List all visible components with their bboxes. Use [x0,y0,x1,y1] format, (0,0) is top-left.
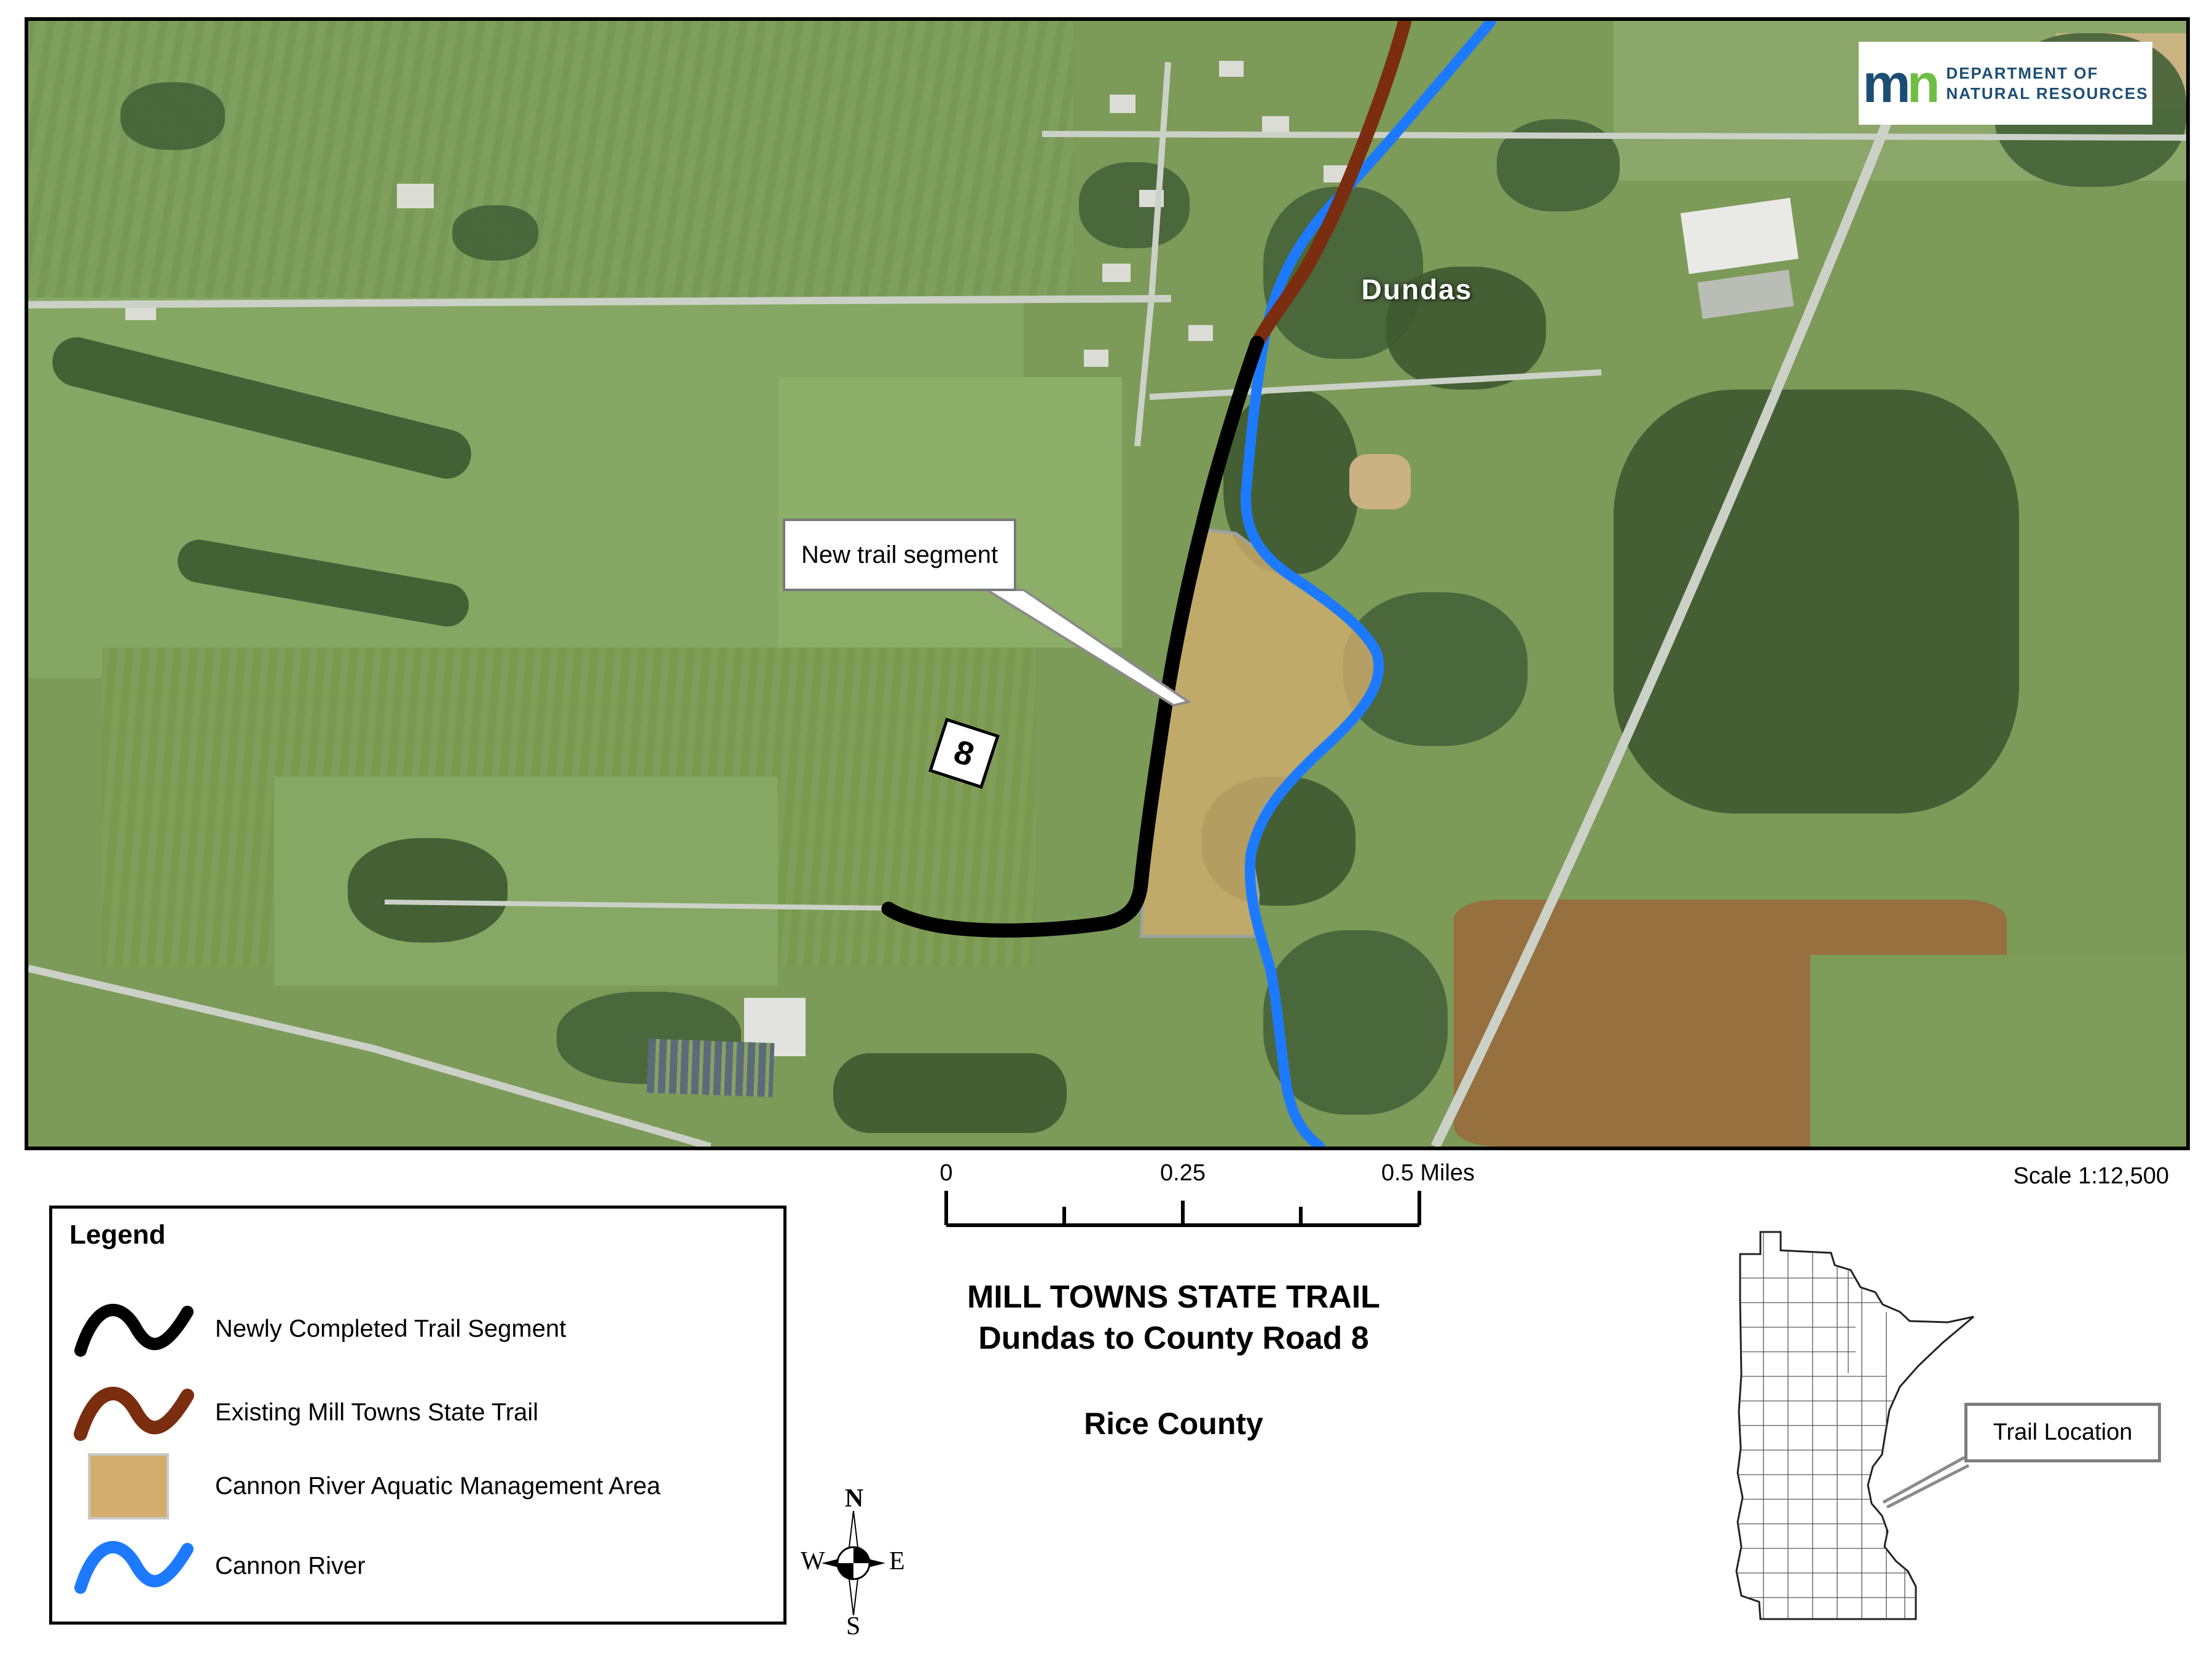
compass-star-icon [817,1511,890,1615]
trail-location-callout: Trail Location [1964,1403,2161,1462]
scalebar-label-quarter: 0.25 [1143,1160,1223,1186]
compass-east-label: E [889,1547,905,1576]
road-network [28,62,2186,1147]
compass-north-label: N [845,1484,863,1513]
map-overlay [28,21,2186,1147]
dnr-logo-text: DEPARTMENT OF NATURAL RESOURCES [1946,63,2148,103]
scale-ratio-note: Scale 1:12,500 [1923,1163,2169,1190]
town-label: Dundas [1325,273,1509,306]
aerial-map: Dundas New trail segment 8 mn DEPARTMENT… [25,17,2190,1150]
county-title: Rice County [916,1406,1432,1441]
inset-leader [1883,1457,1969,1507]
new-trail-callout-text: New trail segment [801,541,998,569]
new-trail-callout: New trail segment [783,519,1016,591]
dnr-logo-line2: NATURAL RESOURCES [1946,84,2148,104]
scalebar-label-0: 0 [928,1160,965,1186]
scalebar [922,1186,1475,1229]
legend-label: Cannon River Aquatic Management Area [215,1473,661,1500]
trail-location-text: Trail Location [1993,1419,2133,1446]
map-title: MILL TOWNS STATE TRAIL Dundas to County … [916,1277,1432,1359]
mn-logo-icon: mn [1862,57,1936,111]
legend-label: Existing Mill Towns State Trail [215,1399,538,1427]
existing-trail-legend-icon [69,1376,198,1449]
mn-logo-m: m [1862,57,1907,111]
compass-rose: N S W E [798,1484,909,1637]
legend-title: Legend [69,1220,165,1250]
legend-label: Cannon River [215,1553,366,1580]
dnr-logo: mn DEPARTMENT OF NATURAL RESOURCES [1859,42,2152,125]
scalebar-label-half: 0.5 Miles [1381,1160,1475,1186]
legend-label: Newly Completed Trail Segment [215,1316,566,1343]
new-trail-legend-icon [69,1292,198,1366]
county-road-8-number: 8 [949,732,979,774]
dnr-logo-line1: DEPARTMENT OF [1946,63,2148,84]
legend: Legend Newly Completed Trail Segment Exi… [49,1206,786,1625]
compass-south-label: S [846,1612,860,1641]
ama-legend-swatch [88,1453,169,1520]
map-title-line1: MILL TOWNS STATE TRAIL [916,1277,1432,1318]
callout-leader [987,590,1188,705]
map-title-line2: Dundas to County Road 8 [916,1318,1432,1359]
river-legend-icon [69,1529,198,1603]
mn-logo-n: n [1907,57,1937,111]
